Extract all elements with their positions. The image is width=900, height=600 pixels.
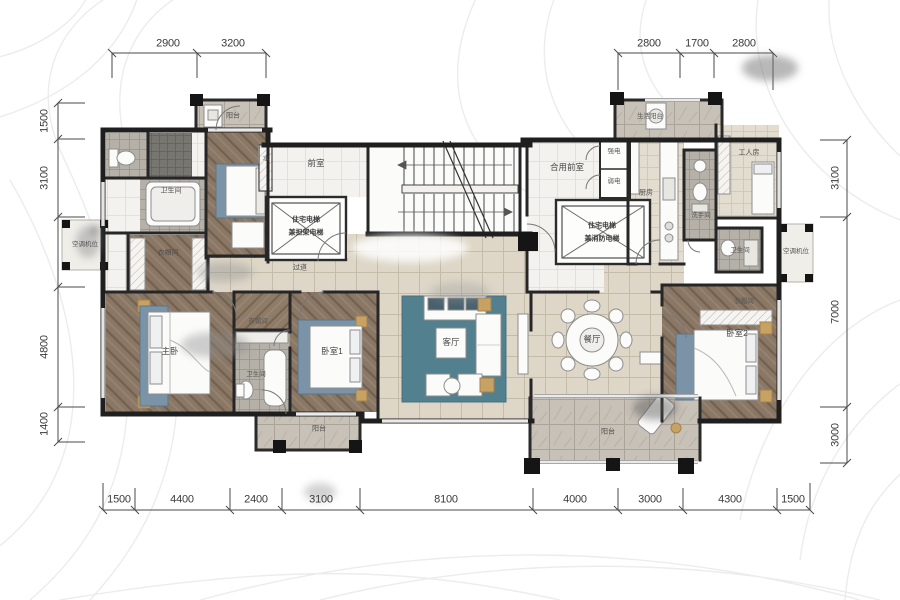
nightstand-icon <box>760 322 772 334</box>
bathtub-icon <box>264 350 286 406</box>
dining-table-icon <box>552 300 632 380</box>
floor-plan-drawing <box>0 0 900 600</box>
toilet-icon <box>721 240 735 256</box>
ac-right-box <box>779 224 813 282</box>
nightstand-icon <box>760 390 772 402</box>
sideboard-icon <box>640 352 662 364</box>
entry-column <box>518 232 538 251</box>
front-room-floor <box>258 145 368 197</box>
shower-floor <box>148 133 192 178</box>
floor-plan: 2900 3200 2800 1700 2800 1500 3100 4800 … <box>0 0 900 600</box>
shower-tray-icon <box>744 240 758 266</box>
ottoman-icon <box>444 378 460 394</box>
water-shaft-box <box>259 145 272 191</box>
toilet-icon <box>117 151 135 165</box>
toilet-tank-icon <box>236 384 244 397</box>
wardrobe-icon <box>718 136 730 194</box>
closet-master-floor <box>234 292 290 330</box>
service-balcony-floor <box>615 100 722 140</box>
sink-icon <box>663 178 675 200</box>
side-table-icon <box>480 378 494 392</box>
study-desk-icon <box>232 222 264 248</box>
nightstand-icon <box>356 390 367 401</box>
side-table-icon <box>478 298 491 311</box>
coffee-table-icon <box>436 328 466 358</box>
sink-icon <box>694 160 706 172</box>
armchair-icon <box>458 374 482 396</box>
nightstand-icon <box>356 316 367 327</box>
balcony-bottom-left-floor <box>256 414 360 450</box>
planter-icon <box>671 423 681 433</box>
tv-console-icon <box>518 314 528 374</box>
toilet-icon <box>693 183 707 201</box>
